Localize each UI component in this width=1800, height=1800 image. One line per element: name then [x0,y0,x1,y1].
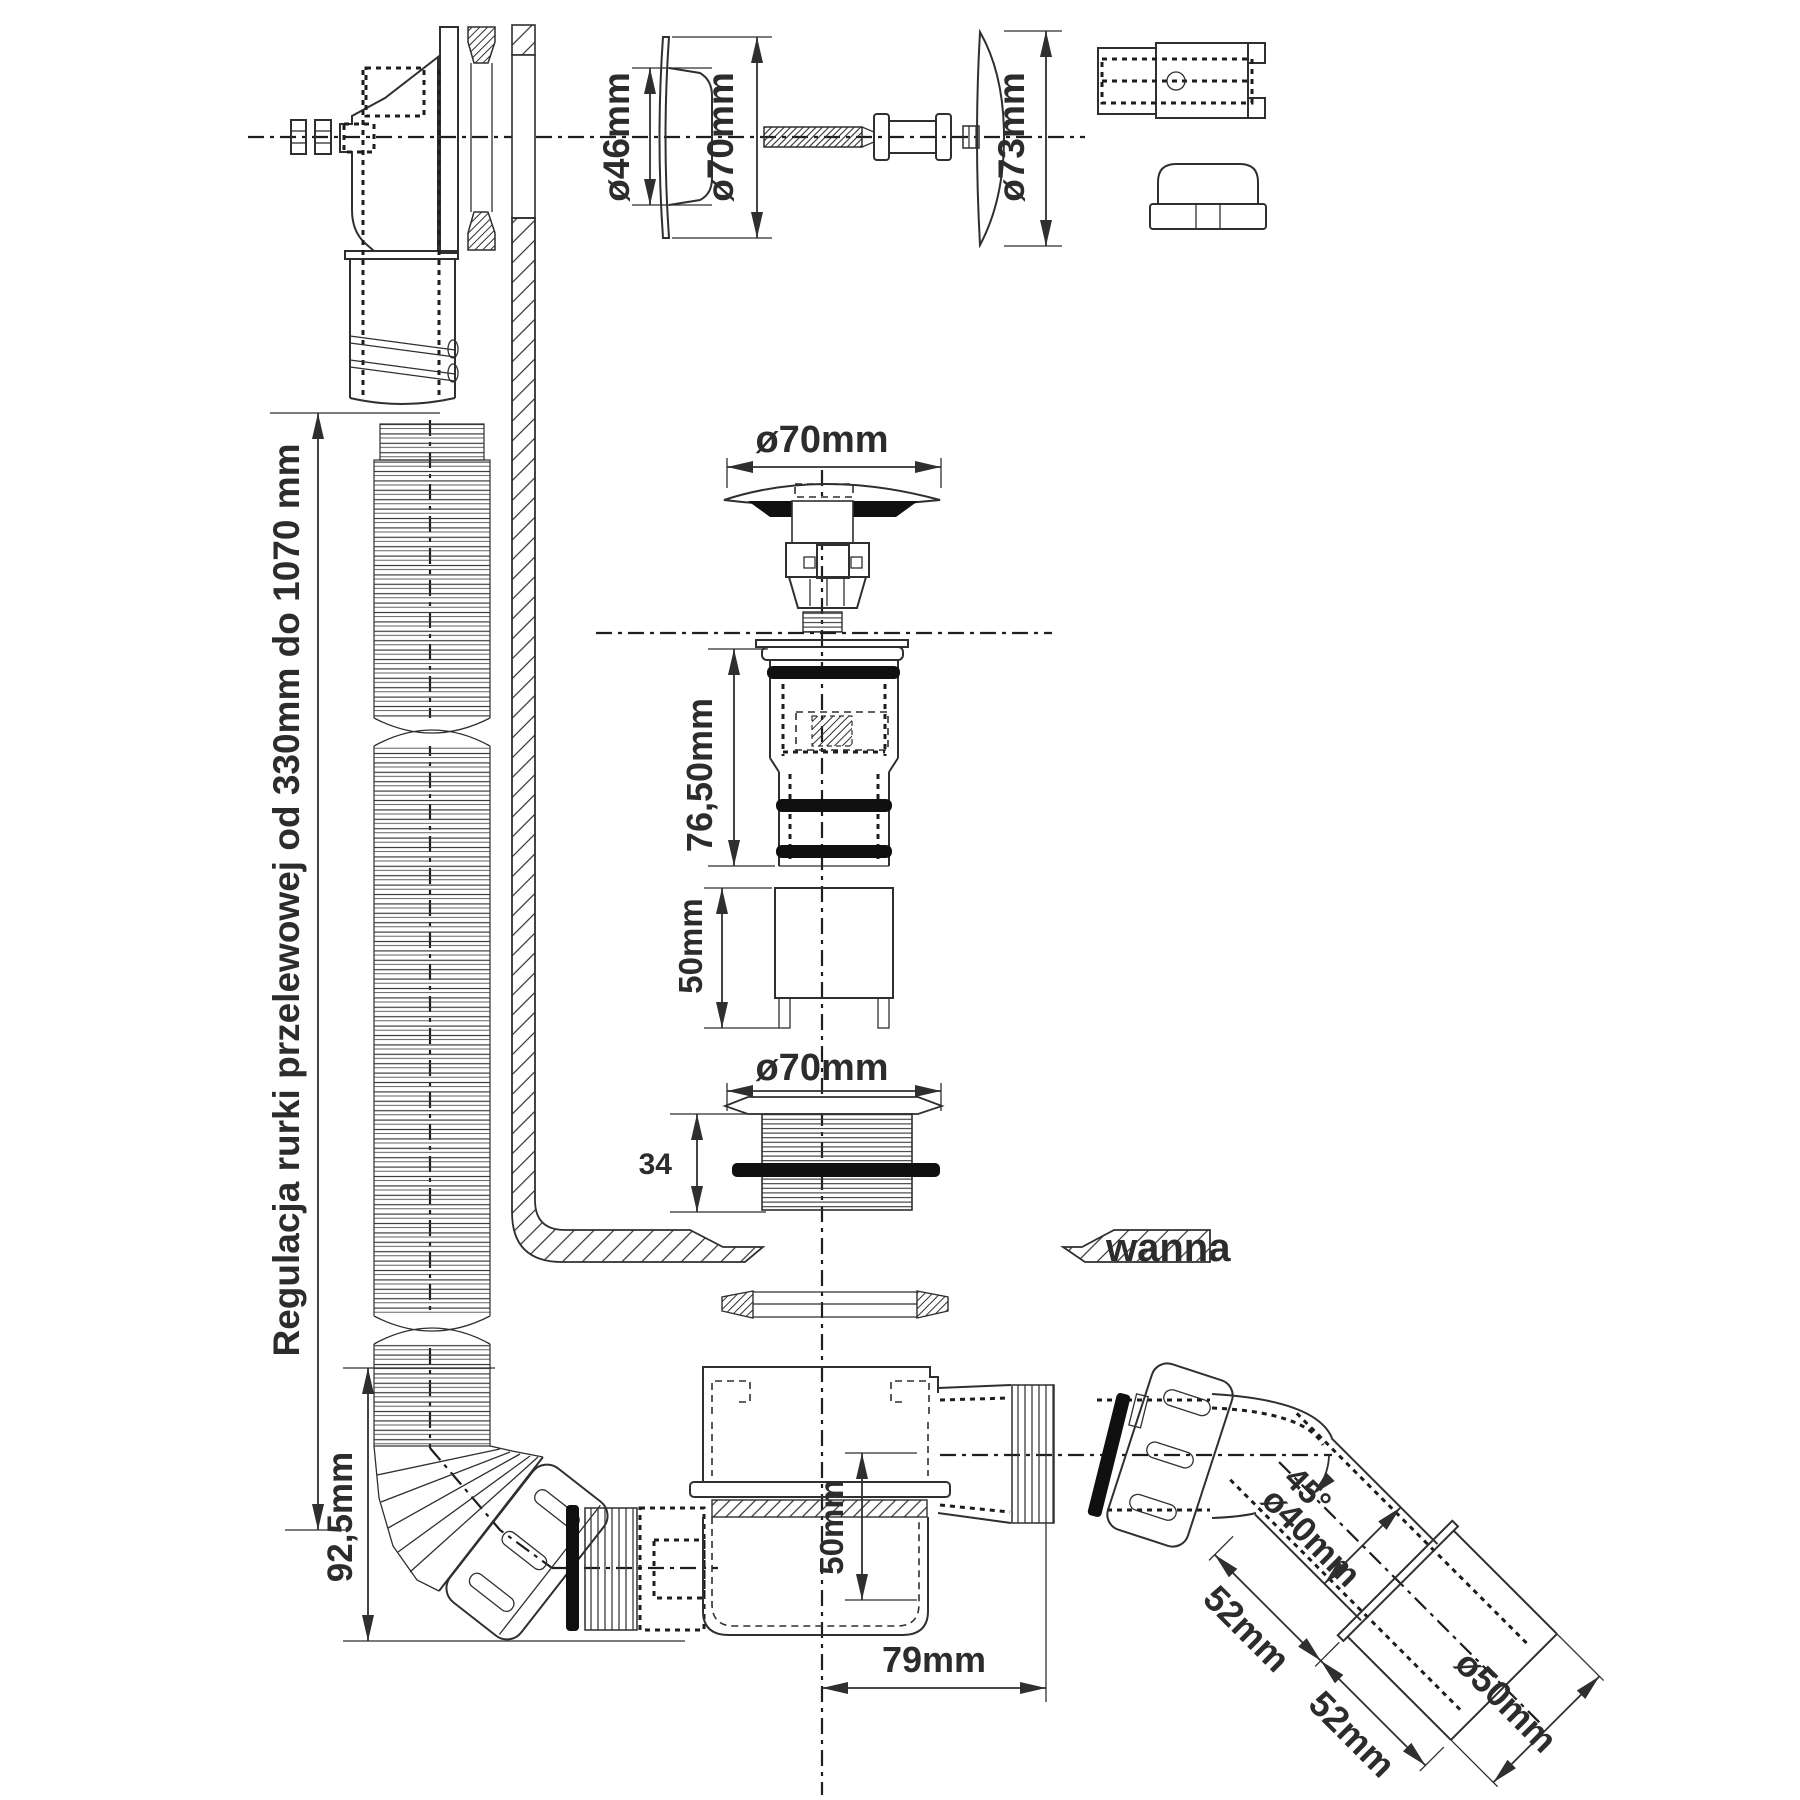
inlet-gasket [566,1505,579,1631]
drain-body-oring-mid [776,799,892,812]
plug-threaded-stud [803,612,842,632]
dim-label-073: ø73mm [991,72,1032,202]
bathtub-label: wanna [1105,1226,1231,1270]
plug-clickclack-mechanism [786,543,869,632]
bath-drain-technical-diagram: wanna [0,0,1800,1800]
dim-label-regulacja: Regulacja rurki przelewowej od 330mm do … [266,443,307,1356]
dim-extension-height: 50mm [672,888,779,1028]
diagram-canvas: wanna [0,0,1800,1800]
dim-label-52-2: 52mm [1301,1683,1404,1786]
pipe-smooth-joint-2 [372,1316,492,1344]
dim-label-070-flange: ø70mm [755,1047,888,1089]
dim-label-046: ø46mm [596,72,637,202]
flange-rim [725,1097,942,1114]
dim-label-925: 92,5mm [321,1452,360,1582]
drain-body-oring-bottom [776,845,892,858]
popup-plug: ø70mm [596,419,1052,633]
dim-trap-depth: 50mm [813,1453,917,1600]
dim-label-52-1: 52mm [1196,1577,1299,1680]
outlet-thread [1012,1385,1054,1523]
overflow-flange-plate [440,27,458,253]
drain-body-oring-top [767,666,900,679]
dim-label-34: 34 [639,1148,673,1181]
overflow-wall-fitting [291,27,495,404]
drain-body [756,640,908,866]
flange-thread [762,1114,912,1210]
overflow-corrugated-pipe [372,424,492,1446]
flange-gasket [732,1163,940,1177]
bathtub-wall [512,25,763,1262]
inlet-thread [585,1508,637,1630]
dim-label-070-plug: ø70mm [755,419,888,461]
dim-label-050: ø50mm [1447,1642,1565,1760]
elbow-inner-curve [1212,1513,1256,1518]
elbow-pipe-rotated: 52mm 52mm ø40mm ø50mm [1150,1389,1615,1800]
dim-label-79: 79mm [882,1639,986,1680]
plug-stem [792,501,853,543]
dim-drain-body-height: 76,50mm [679,649,775,866]
overflow-bevel-gasket [468,27,495,250]
dim-label-50-trap: 50mm [813,1479,850,1574]
dim-label-50ext: 50mm [672,898,709,993]
overflow-body-top-right [1098,43,1265,118]
dim-sleeve-segment: 52mm [1285,1642,1443,1800]
corrugated-bend [374,1446,543,1591]
dim-overflow-cover: ø73mm [991,31,1062,246]
pipe-smooth-joint-1 [372,718,492,746]
elbow-assembly: 52mm 52mm ø40mm ø50mm 45° [1087,1359,1614,1800]
drain-flange: ø70mm [725,1047,942,1210]
dim-label-7650: 76,50mm [679,698,720,852]
extension-tube [775,888,893,1028]
tub-washer [722,1291,948,1318]
dim-outlet-offset: 79mm [822,1639,1046,1688]
drain-body-screen [812,716,852,746]
dim-label-070-top: ø70mm [700,72,741,202]
overflow-body-cap [1150,164,1266,229]
overflow-standpipe [350,70,458,404]
